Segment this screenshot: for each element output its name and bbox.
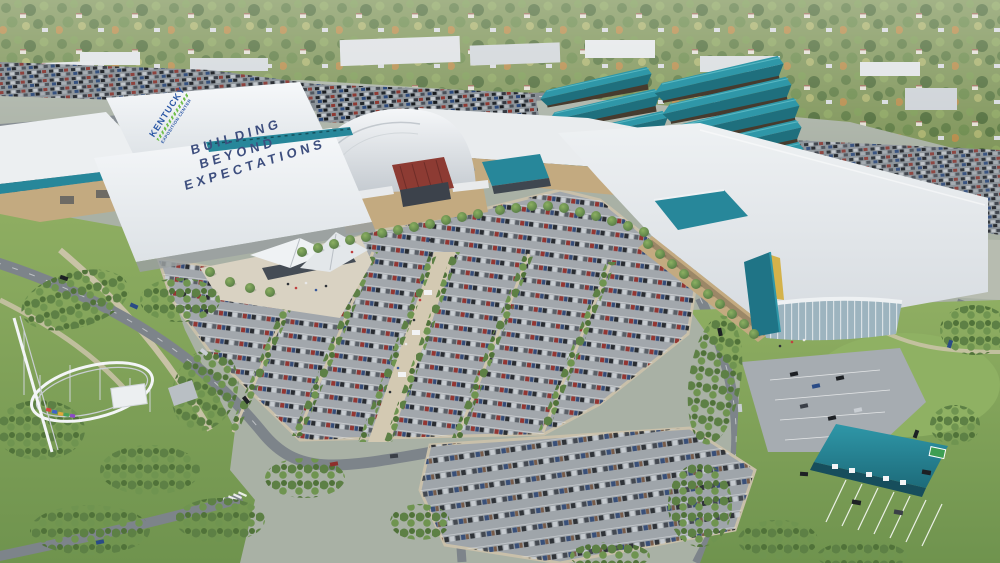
aerial-rendering: KENTUCKY EXPOSITION CENTER BUILDING BEYO… (0, 0, 1000, 563)
event-tent (111, 384, 147, 409)
scene-graphic (0, 0, 1000, 563)
